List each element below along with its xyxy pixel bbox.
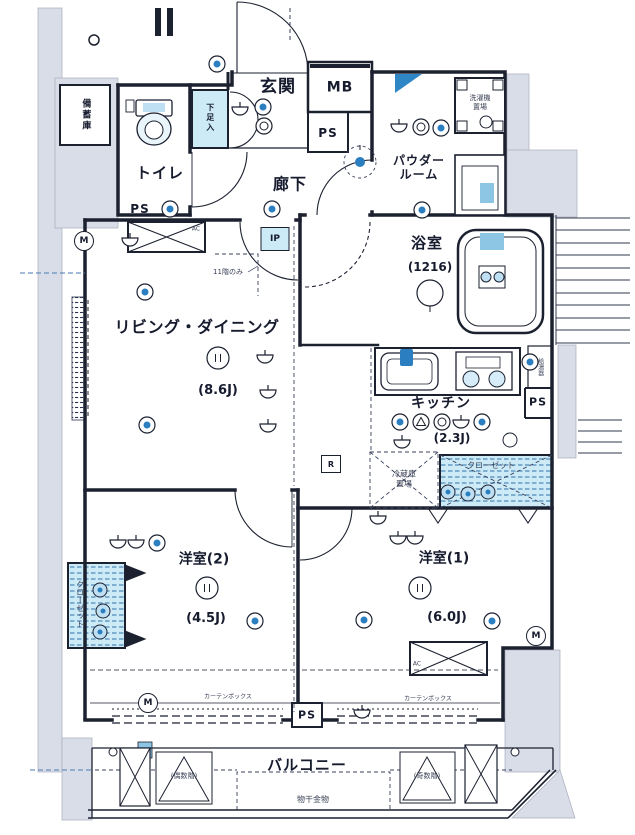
toilet-door-arc (192, 152, 247, 207)
closet2-pivot-1 (125, 565, 145, 581)
ip-box: IP (261, 227, 290, 251)
powder-door-arc (317, 160, 372, 215)
powder-room-label: パウダー ルーム (393, 154, 445, 183)
balcony-label: バルコニー (267, 756, 347, 774)
casework (60, 62, 552, 727)
sink-faucet (400, 349, 413, 366)
ps-label-top: PS (318, 126, 337, 140)
m-mark-room1: M (526, 626, 546, 646)
m-mark-label: M (80, 236, 89, 246)
bathroom-size: (1216) (408, 260, 452, 274)
ps-label-bottom: PS (298, 708, 316, 721)
closet2-pivot-2 (125, 631, 145, 647)
entrance-door-arc (237, 2, 308, 73)
ps-label-toilet: PS (130, 202, 149, 216)
ps-label-kitchen: PS (529, 395, 547, 408)
room2-closet-label: クローゼット (75, 580, 85, 628)
living-dining-label: リビング・ダイニング (114, 317, 279, 336)
laundry-pole-label: 物干金物 (297, 795, 329, 805)
shoe-cabinet-label: 下足入 (205, 103, 215, 133)
closet-door-mark-2 (518, 508, 538, 523)
ld-window-hatch (72, 297, 85, 420)
even-floors-label: (偶数階) (171, 772, 197, 780)
ip-box-label: IP (270, 234, 280, 244)
room2-door-arc (235, 490, 292, 547)
m-mark-living: M (74, 231, 94, 251)
closet-door-mark-1 (428, 508, 448, 523)
m-mark-label: M (144, 698, 153, 708)
laundry-area-label: 洗濯機 置場 (470, 94, 491, 112)
kitchen-closet-label: クローゼット (467, 461, 515, 471)
r-box-label: R (328, 460, 334, 469)
ip-note-label: 11階のみ (213, 268, 243, 276)
m-mark-room2: M (138, 693, 158, 713)
water-heater-label: 給湯器 (536, 358, 543, 376)
room1-label: 洋室(1) (419, 551, 470, 568)
bath-door-arc (305, 222, 370, 287)
bath-light (417, 280, 443, 306)
odd-floors-label: (奇数階) (414, 772, 440, 780)
curtain-box-label-room2: カーテンボックス (204, 693, 252, 700)
floorplan: 玄関 MB PS PS PS PS トイレ 廊下 パウダー ルーム 洗濯機 置場… (0, 0, 635, 835)
entrance-label: 玄関 (260, 77, 296, 97)
r-box: R (321, 455, 341, 473)
toilet-label: トイレ (136, 164, 184, 182)
storage-label: 備蓄庫 (80, 99, 91, 132)
kitchen-label: キッチン (411, 396, 471, 413)
shoe-cabinet-door-arc (230, 92, 258, 148)
kitchen-size: (2.3J) (434, 431, 471, 445)
m-mark-label: M (532, 631, 541, 641)
powder-corner-shelf (395, 74, 422, 93)
curtain-box-label-room1: カーテンボックス (404, 695, 452, 702)
room2-label: 洋室(2) (179, 552, 230, 569)
meter-box-label: MB (327, 80, 354, 97)
ac-mark-room1: AC (413, 660, 421, 667)
living-dining-size: (8.6J) (198, 383, 238, 399)
hallway-label: 廊下 (273, 174, 307, 193)
ac-mark-living: AC (192, 225, 200, 232)
refrigerator-label: 冷蔵庫 置場 (392, 470, 416, 491)
bathroom-label: 浴室 (411, 234, 443, 252)
room1-size: (6.0J) (427, 610, 467, 626)
room1-door-arc (300, 508, 352, 560)
room2-size: (4.5J) (186, 611, 226, 627)
